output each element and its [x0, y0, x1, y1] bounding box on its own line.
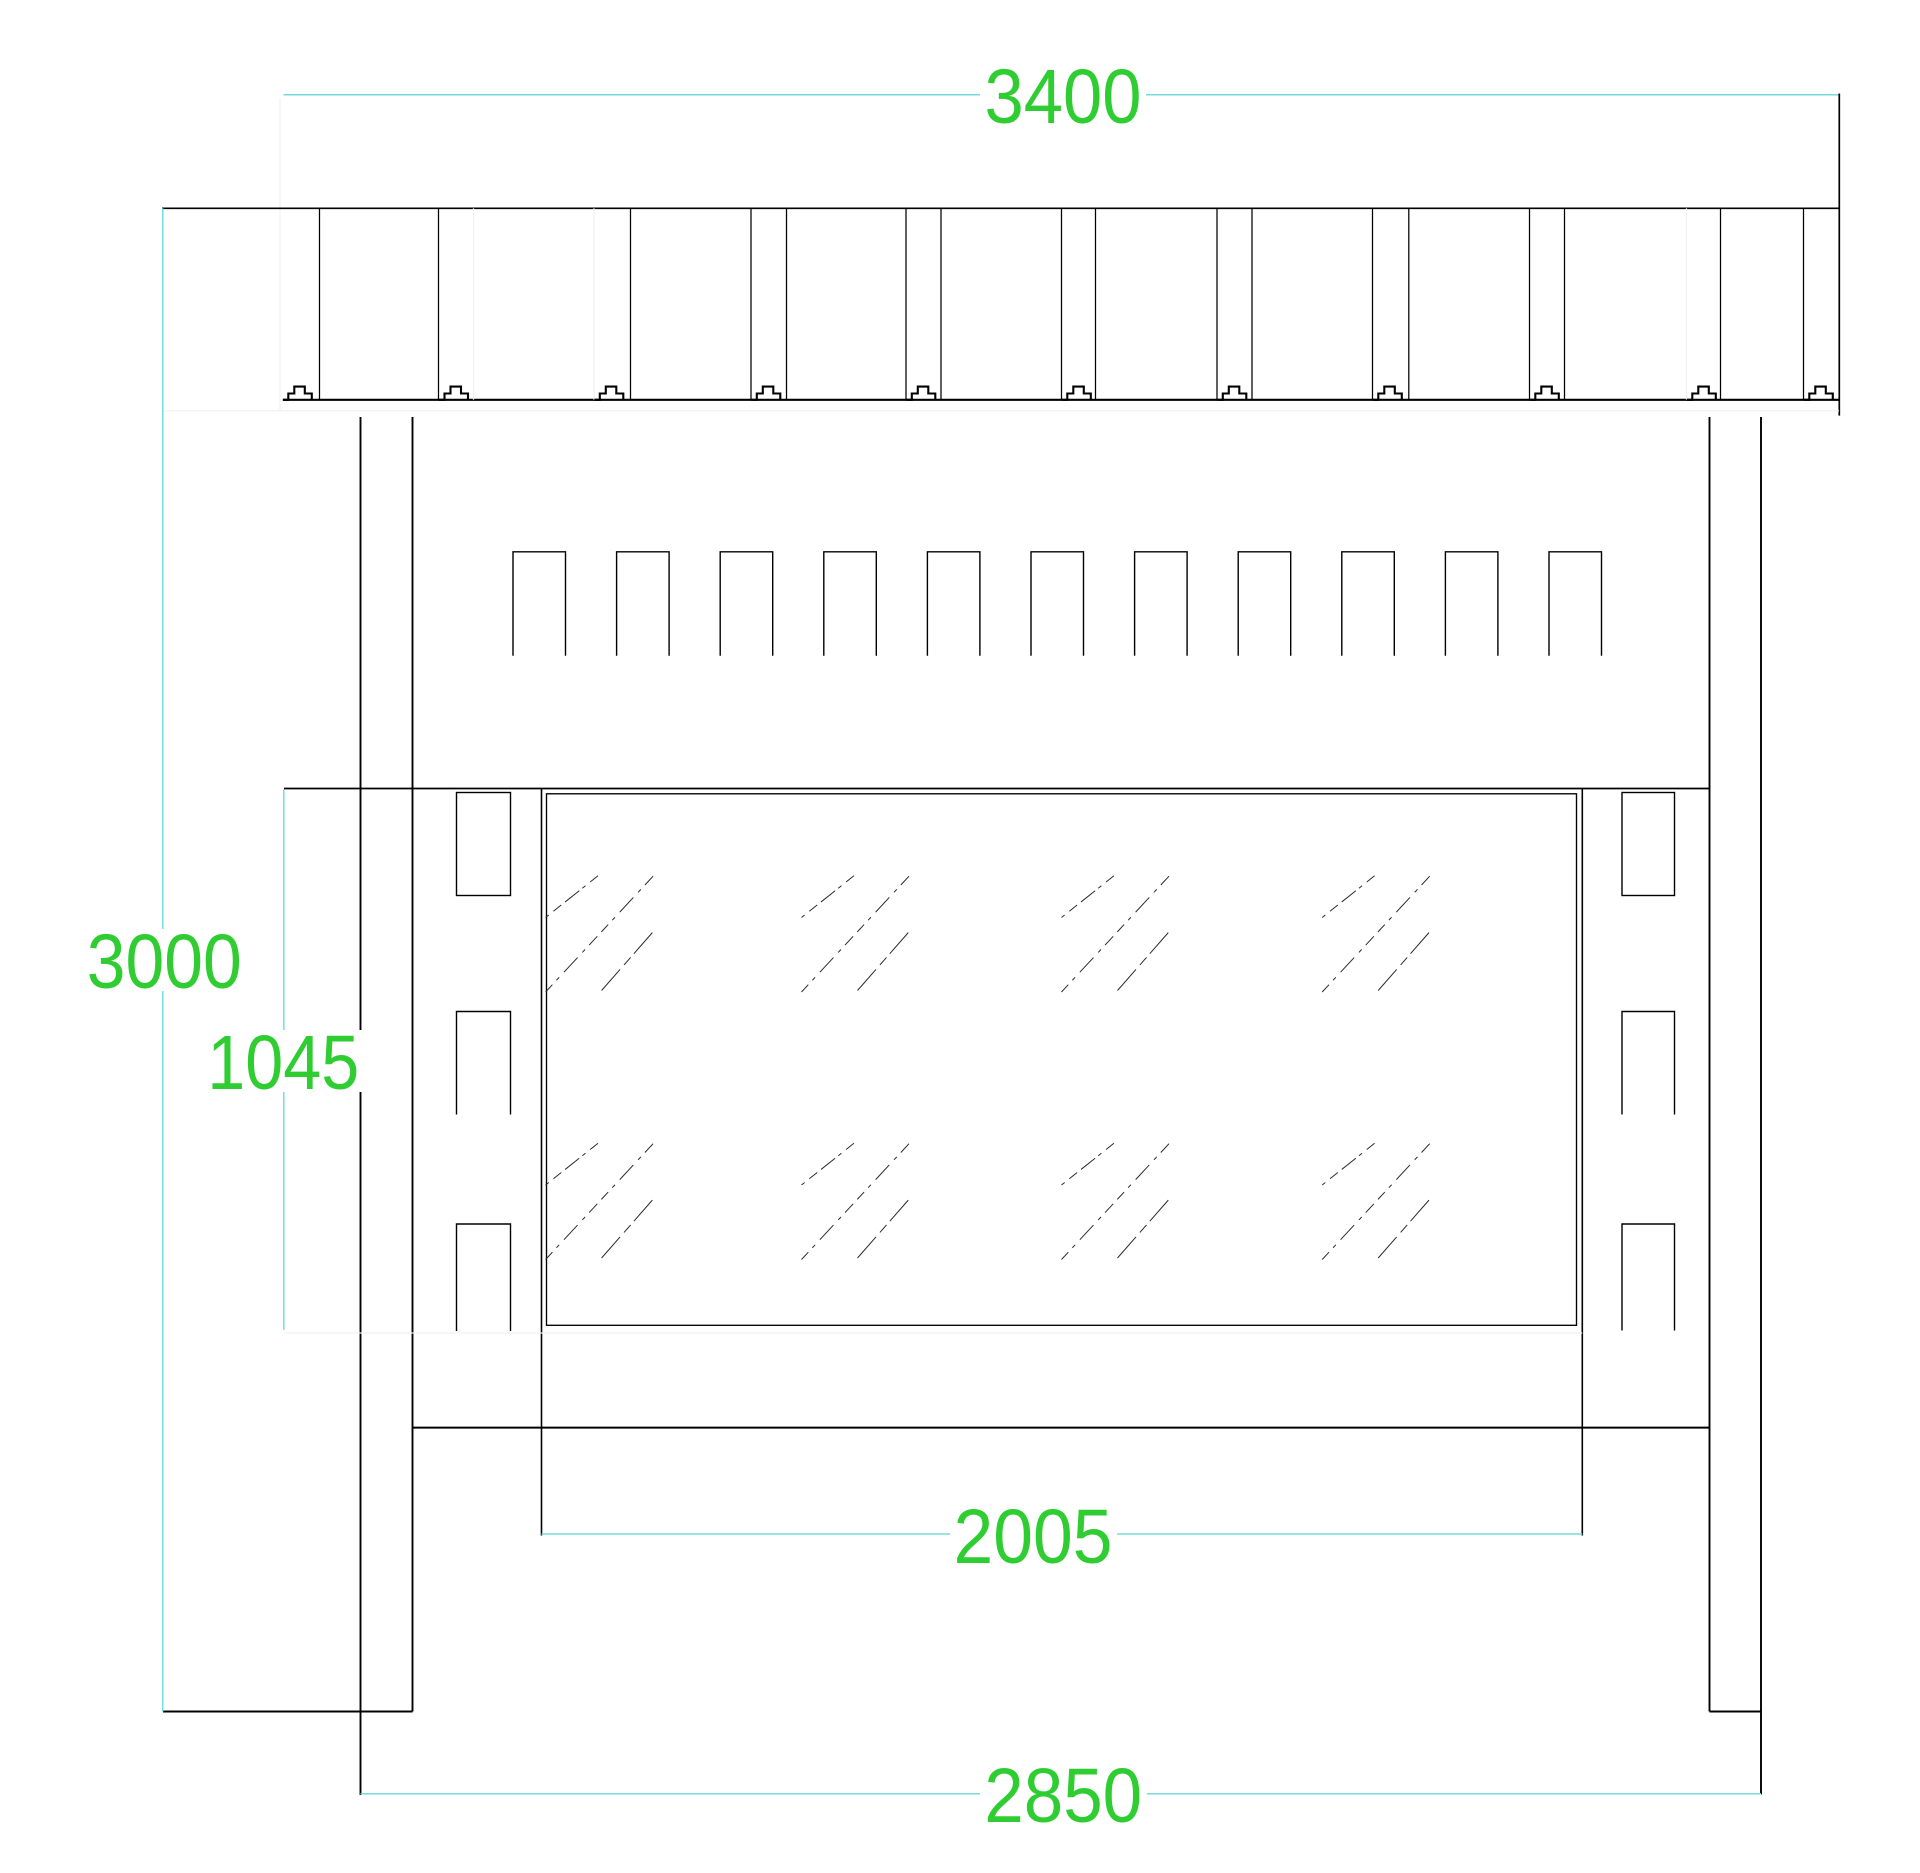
svg-text:2005: 2005 [954, 1494, 1113, 1580]
svg-text:1045: 1045 [207, 1020, 359, 1106]
svg-text:2850: 2850 [984, 1753, 1142, 1839]
svg-text:3400: 3400 [985, 54, 1142, 140]
svg-text:3000: 3000 [87, 919, 242, 1005]
